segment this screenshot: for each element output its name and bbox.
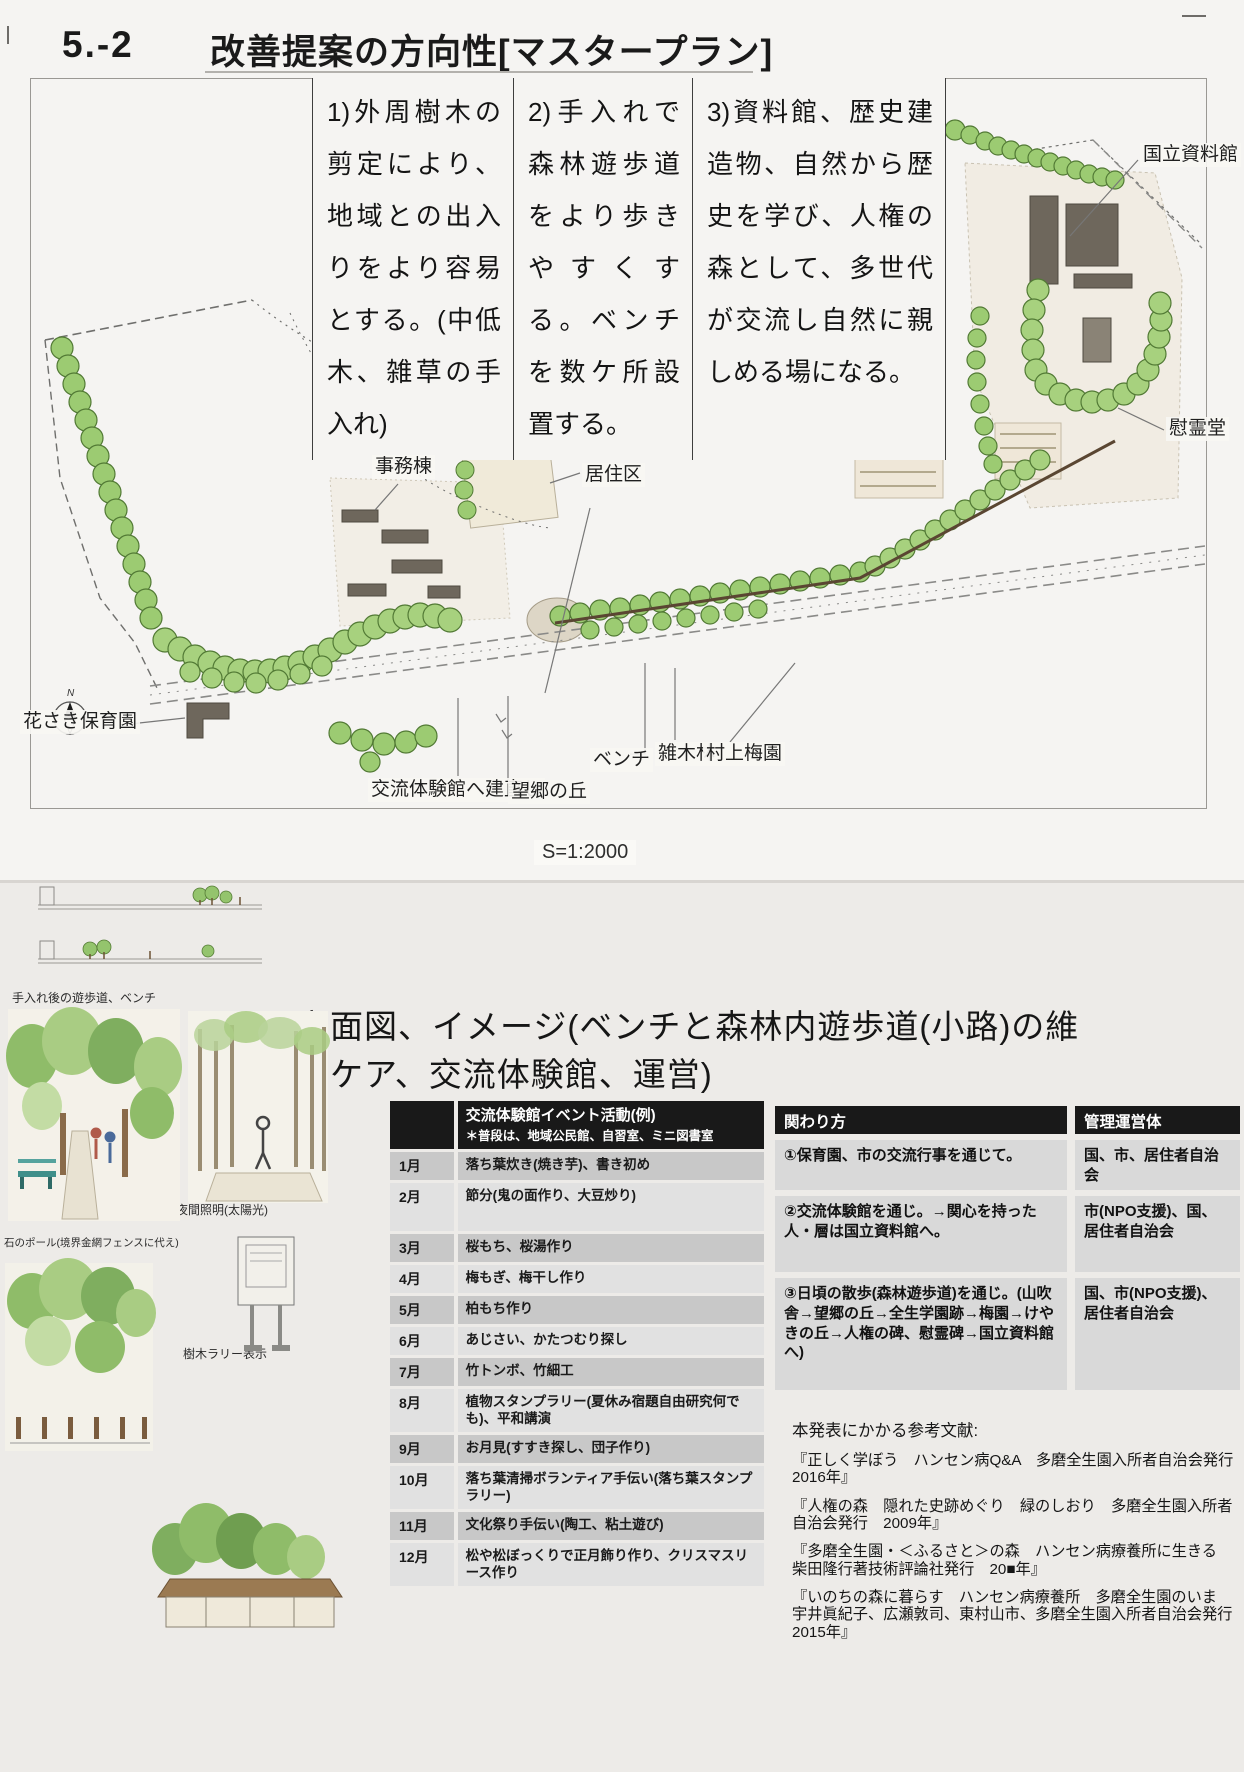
event-row: 6月あじさい、かたつむり探し [390, 1327, 764, 1355]
involvement-row: ③日頃の散歩(森林遊歩道)を通じ。(山吹舎→望郷の丘→全生学園跡→梅園→けやきの… [775, 1278, 1067, 1390]
event-month: 10月 [390, 1466, 454, 1509]
proposal-3: 3)資料館、歴史建造物、自然から歴史を学び、人権の森として、多世代が交流し自然に… [692, 78, 946, 460]
map-scale: S=1:2000 [534, 840, 636, 865]
involvement-row: ②交流体験館を通じ。→関心を持った人・層は国立資料館へ。 [775, 1196, 1067, 1272]
management-header: 管理運営体 [1075, 1106, 1240, 1134]
label-hill: 望郷の丘 [508, 780, 590, 804]
management-row: 市(NPO支援)、国、居住者自治会 [1075, 1196, 1240, 1272]
reference-item: 『多磨全生園・＜ふるさと＞の森 ハンセン病療養所に生きる 柴田隆行著技術評論社発… [792, 1543, 1242, 1578]
tree-cluster-southwest [153, 603, 462, 693]
sketch-panel [0, 1001, 345, 1741]
event-table-header: 交流体験館イベント活動(例) ＊普段は、地域公民館、自習室、ミニ図書室 [390, 1101, 764, 1149]
event-month: 5月 [390, 1296, 454, 1324]
event-row: 10月落ち葉清掃ボランティア手伝い(落ち葉スタンプラリー) [390, 1466, 764, 1509]
management-table: 管理運営体 国、市、居住者自治会 市(NPO支援)、国、居住者自治会 国、市(N… [1075, 1106, 1240, 1390]
proposal-1: 1)外周樹木の剪定により、地域との出入りをより容易とする。(中低木、雑草の手入れ… [312, 78, 513, 460]
event-row: 9月お月見(すすき探し、団子作り) [390, 1435, 764, 1463]
proposal-2: 2)手入れで森林遊歩道をより歩きやすくする。ベンチを数ケ所設置する。 [513, 78, 692, 460]
involvement-table: 関わり方 ①保育園、市の交流行事を通じて。 ②交流体験館を通じ。→関心を持った人… [775, 1106, 1067, 1390]
event-activity: 竹トンボ、竹細工 [458, 1358, 764, 1386]
label-residential-area: 居住区 [582, 463, 645, 487]
event-header-title-cell: 交流体験館イベント活動(例) ＊普段は、地域公民館、自習室、ミニ図書室 [458, 1101, 764, 1149]
section-number: 5.-2 [62, 24, 134, 66]
reference-item: 『人権の森 隠れた史跡めぐり 緑のしおり 多磨全生園入所者自治会発行 2009年… [792, 1498, 1242, 1533]
label-plum-garden: 村上梅園 [703, 742, 785, 766]
crop-mark [1182, 15, 1206, 17]
event-activity: 落ち葉清掃ボランティア手伝い(落ち葉スタンプラリー) [458, 1466, 764, 1509]
sketch-narrow-path [188, 1011, 330, 1203]
event-table-title: 交流体験館イベント活動(例) [466, 1106, 756, 1126]
label-bench: ベンチ [590, 748, 653, 772]
event-month: 1月 [390, 1152, 454, 1180]
event-row: 3月桜もち、桜湯作り [390, 1234, 764, 1262]
event-month: 6月 [390, 1327, 454, 1355]
event-row: 4月梅もぎ、梅干し作り [390, 1265, 764, 1293]
page-title: 改善提案の方向性[マスタープラン] [210, 24, 773, 75]
involvement-header: 関わり方 [775, 1106, 1067, 1134]
label-office-building: 事務棟 [372, 455, 435, 479]
event-month: 3月 [390, 1234, 454, 1262]
event-table: 交流体験館イベント活動(例) ＊普段は、地域公民館、自習室、ミニ図書室 1月落ち… [390, 1101, 764, 1589]
event-activity: あじさい、かたつむり探し [458, 1327, 764, 1355]
sketch-exchange-hall [152, 1503, 342, 1627]
event-row: 12月松や松ぼっくりで正月飾り作り、クリスマスリース作り [390, 1543, 764, 1586]
elevation-trees [83, 886, 232, 957]
elevation-strips [30, 867, 290, 987]
event-row: 7月竹トンボ、竹細工 [390, 1358, 764, 1386]
event-month: 4月 [390, 1265, 454, 1293]
sketch-signboard [238, 1237, 294, 1351]
event-row: 1月落ち葉炊き(焼き芋)、書き初め [390, 1152, 764, 1180]
label-national-museum: 国立資料館 [1140, 143, 1241, 167]
lower-section-title: 立面図、イメージ(ベンチと森林内遊歩道(小路)の維持ケア、交流体験館、運営) [296, 1003, 1108, 1099]
elevation-detail-box [40, 941, 54, 959]
involvement-row: ①保育園、市の交流行事を通じて。 [775, 1140, 1067, 1190]
event-activity: 柏もち作り [458, 1296, 764, 1324]
management-row: 国、市(NPO支援)、居住者自治会 [1075, 1278, 1240, 1390]
references-heading: 本発表にかかる参考文献: [792, 1417, 1242, 1441]
tree-row-left-edge [51, 337, 162, 629]
nursery-building [187, 703, 229, 738]
reference-item: 『いのちの森に暮らす ハンセン病療養所 多磨全生園のいま 宇井眞紀子、広瀬敦司、… [792, 1589, 1242, 1641]
event-header-month-cell [390, 1101, 454, 1149]
tree-cluster-south [329, 722, 437, 772]
event-table-note: ＊普段は、地域公民館、自習室、ミニ図書室 [466, 1128, 756, 1144]
event-row: 5月柏もち作り [390, 1296, 764, 1324]
lower-poster: 立面図、イメージ(ベンチと森林内遊歩道(小路)の維持ケア、交流体験館、運営) 手… [0, 880, 1244, 1772]
museum-building [1030, 196, 1058, 284]
event-activity: お月見(すすき探し、団子作り) [458, 1435, 764, 1463]
elevation-detail-box [40, 887, 54, 905]
office-building [342, 510, 378, 522]
label-nursery: 花さき保育園 [20, 710, 140, 734]
event-month: 7月 [390, 1358, 454, 1386]
event-activity: 桜もち、桜湯作り [458, 1234, 764, 1262]
event-month: 12月 [390, 1543, 454, 1586]
event-row: 2月節分(鬼の面作り、大豆炒り) [390, 1183, 764, 1231]
memorial-building [1083, 318, 1111, 362]
event-row: 11月文化祭り手伝い(陶工、粘土遊び) [390, 1512, 764, 1540]
label-memorial-hall: 慰霊堂 [1166, 417, 1229, 441]
event-month: 9月 [390, 1435, 454, 1463]
event-month: 11月 [390, 1512, 454, 1540]
elevation-figures [90, 897, 240, 959]
event-month: 2月 [390, 1183, 454, 1231]
proposal-columns: 1)外周樹木の剪定により、地域との出入りをより容易とする。(中低木、雑草の手入れ… [312, 78, 946, 460]
management-row: 国、市、居住者自治会 [1075, 1140, 1240, 1190]
event-activity: 落ち葉炊き(焼き芋)、書き初め [458, 1152, 764, 1180]
references: 本発表にかかる参考文献: 『正しく学ぼう ハンセン病Q&A 多磨全生園入所者自治… [792, 1417, 1242, 1641]
event-activity: 節分(鬼の面作り、大豆炒り) [458, 1183, 764, 1231]
event-activity: 植物スタンプラリー(夏休み宿題自由研究何でも)、平和講演 [458, 1389, 764, 1432]
event-row: 8月植物スタンプラリー(夏休み宿題自由研究何でも)、平和講演 [390, 1389, 764, 1432]
svg-text:N: N [67, 688, 75, 699]
event-activity: 松や松ぼっくりで正月飾り作り、クリスマスリース作り [458, 1543, 764, 1586]
event-activity: 文化祭り手伝い(陶工、粘土遊び) [458, 1512, 764, 1540]
poster-page: 5.-2 改善提案の方向性[マスタープラン] [0, 0, 1244, 1772]
crop-mark [7, 26, 9, 44]
title-underline [205, 71, 753, 73]
event-activity: 梅もぎ、梅干し作り [458, 1265, 764, 1293]
sketch-forest-path-bench [6, 1007, 182, 1221]
event-month: 8月 [390, 1389, 454, 1432]
reference-item: 『正しく学ぼう ハンセン病Q&A 多磨全生園入所者自治会発行 2016年』 [792, 1452, 1242, 1487]
sketch-stone-poles [5, 1258, 156, 1451]
